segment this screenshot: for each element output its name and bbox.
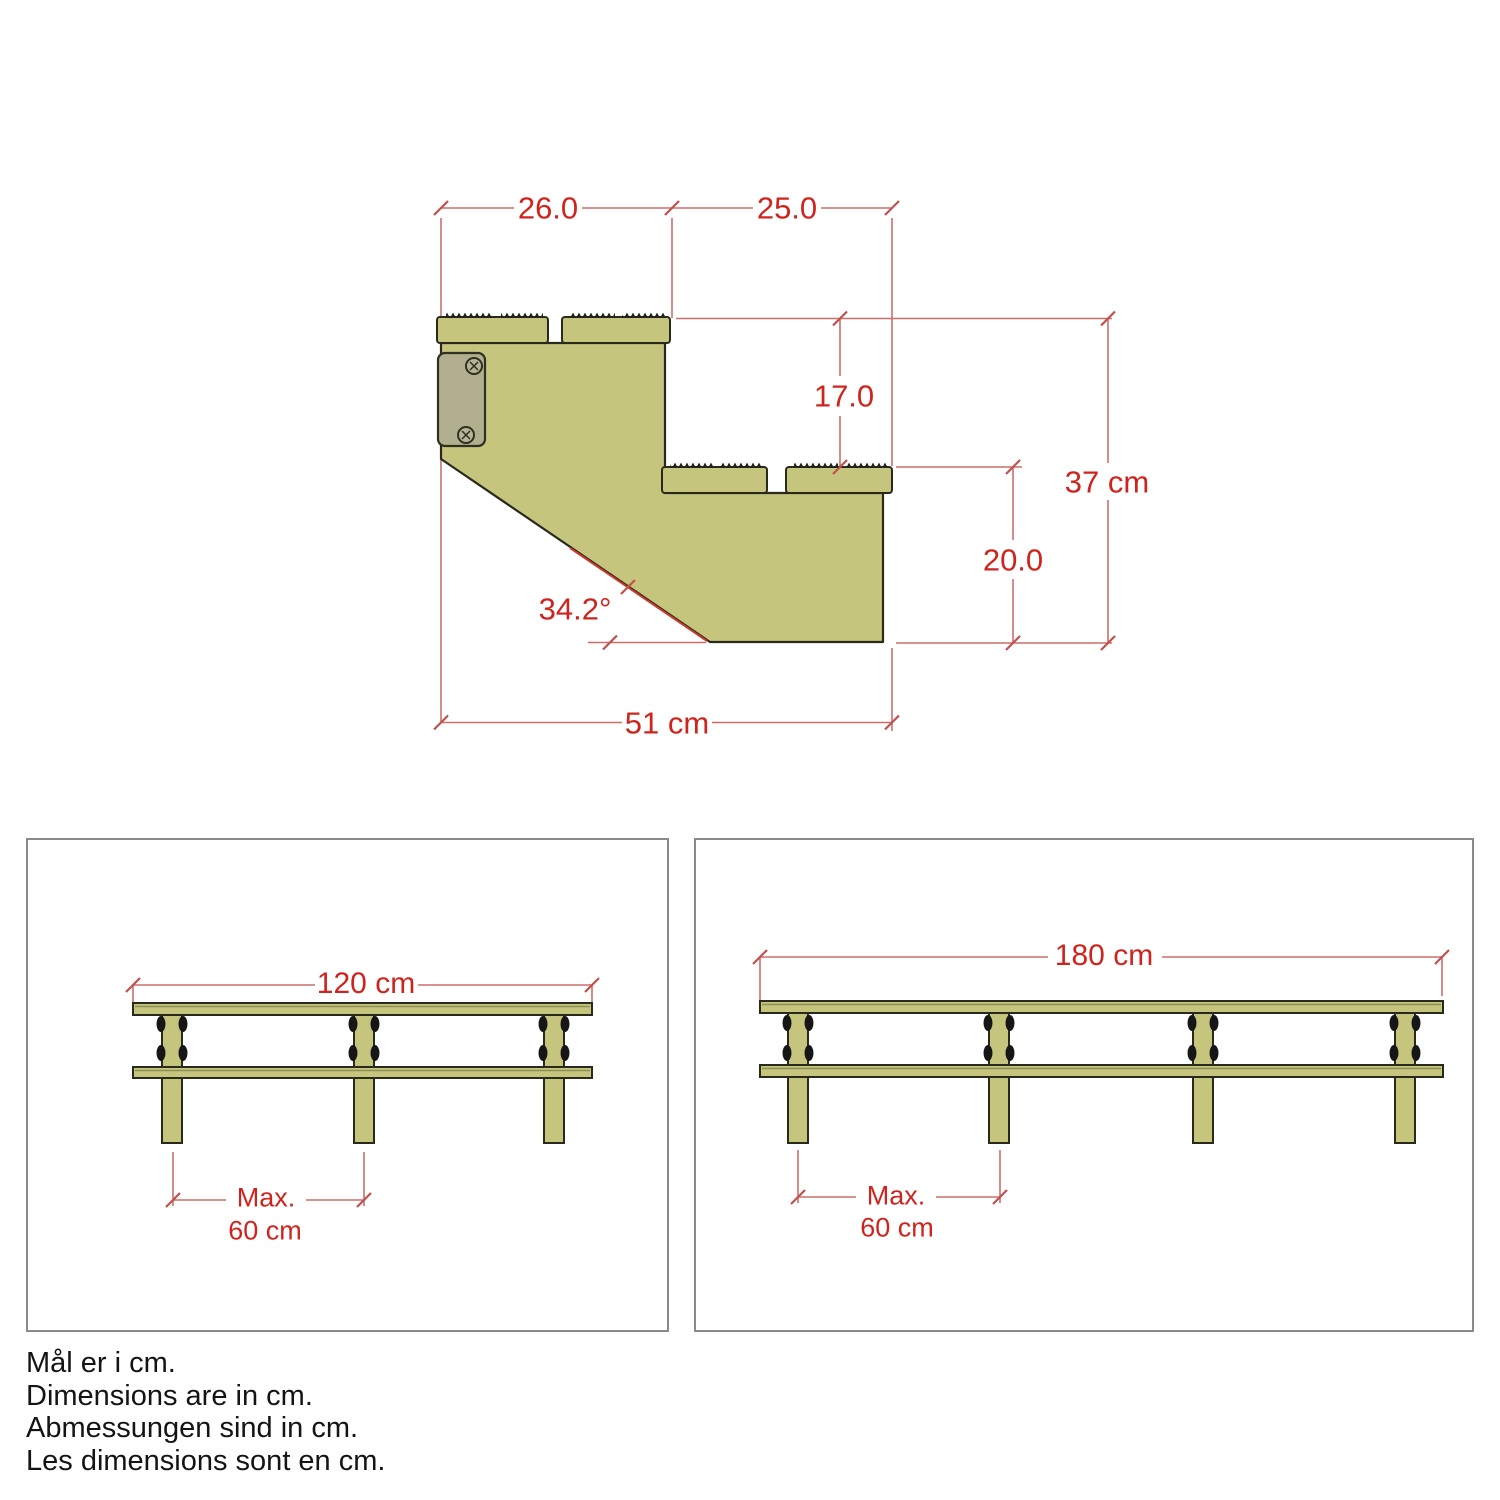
- tread-board: [562, 317, 670, 343]
- dim-spacing-right: 60 cm: [860, 1215, 934, 1242]
- dim-angle: 34.2°: [539, 594, 612, 625]
- dim-total-height: 37 cm: [1065, 467, 1149, 498]
- note-danish: Mål er i cm.: [26, 1347, 385, 1380]
- technical-drawing-page: 26.0 25.0 17.0 37 cm 20.0 34.2° 51 cm 12…: [0, 0, 1500, 1500]
- lower-rail: [133, 1067, 592, 1078]
- drawing-canvas: [0, 0, 1500, 1500]
- dim-lower-rise: 20.0: [983, 545, 1043, 576]
- unit-notes: Mål er i cm. Dimensions are in cm. Abmes…: [26, 1347, 385, 1477]
- top-board: [133, 1003, 592, 1015]
- front-view-panel-180: [695, 839, 1473, 1331]
- note-french: Les dimensions sont en cm.: [26, 1445, 385, 1478]
- dim-step-rise: 17.0: [814, 381, 874, 412]
- dim-spacing-left: 60 cm: [228, 1218, 302, 1245]
- tread-board: [437, 317, 548, 343]
- panel-border: [27, 839, 668, 1331]
- dim-max-label-left: Max.: [237, 1185, 296, 1212]
- panel-border: [695, 839, 1473, 1331]
- dim-second-step-depth: 25.0: [757, 193, 817, 224]
- tread-board: [786, 467, 892, 493]
- dim-width-120: 120 cm: [317, 969, 415, 999]
- note-german: Abmessungen sind in cm.: [26, 1412, 385, 1445]
- note-english: Dimensions are in cm.: [26, 1380, 385, 1413]
- dim-top-step-depth: 26.0: [518, 193, 578, 224]
- top-board: [760, 1001, 1443, 1013]
- dim-max-label-right: Max.: [867, 1183, 926, 1210]
- dim-width-180: 180 cm: [1055, 941, 1153, 971]
- lower-rail: [760, 1065, 1443, 1077]
- stringer-side-view: [437, 313, 892, 643]
- front-view-panel-120: [27, 839, 668, 1331]
- dim-total-depth: 51 cm: [625, 708, 709, 739]
- tread-board: [662, 467, 767, 493]
